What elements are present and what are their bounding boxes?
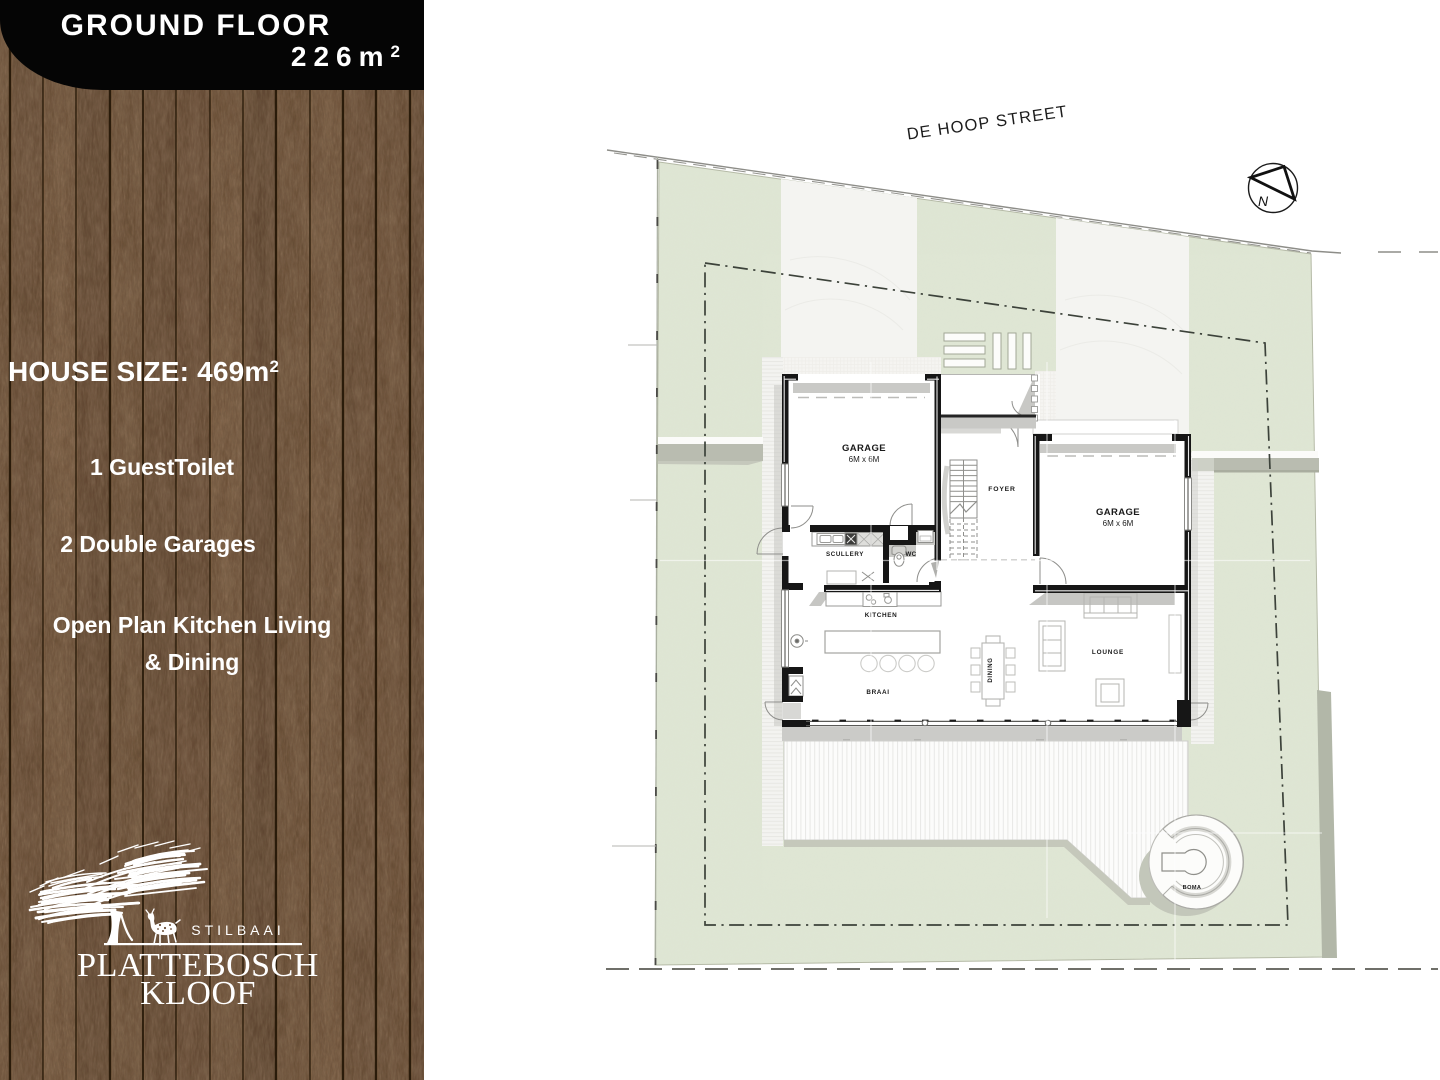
svg-text:6M x 6M: 6M x 6M — [1103, 519, 1134, 528]
svg-text:BRAAI: BRAAI — [866, 689, 889, 696]
svg-text:WC: WC — [905, 551, 916, 558]
svg-text:KLOOF: KLOOF — [140, 975, 256, 1012]
svg-text:DE HOOP STREET: DE HOOP STREET — [906, 103, 1069, 144]
svg-text:GARAGE: GARAGE — [1096, 507, 1140, 518]
svg-text:LOUNGE: LOUNGE — [1092, 649, 1124, 656]
svg-text:FOYER: FOYER — [988, 486, 1015, 493]
svg-text:GARAGE: GARAGE — [842, 443, 886, 454]
svg-text:6M x 6M: 6M x 6M — [849, 455, 880, 464]
svg-text:BOMA: BOMA — [1183, 885, 1202, 891]
svg-text:KITCHEN: KITCHEN — [865, 612, 898, 619]
svg-text:STILBAAI: STILBAAI — [191, 922, 284, 938]
svg-text:DINING: DINING — [988, 657, 994, 682]
svg-text:SCULLERY: SCULLERY — [826, 551, 864, 558]
svg-text:N: N — [1258, 193, 1269, 209]
